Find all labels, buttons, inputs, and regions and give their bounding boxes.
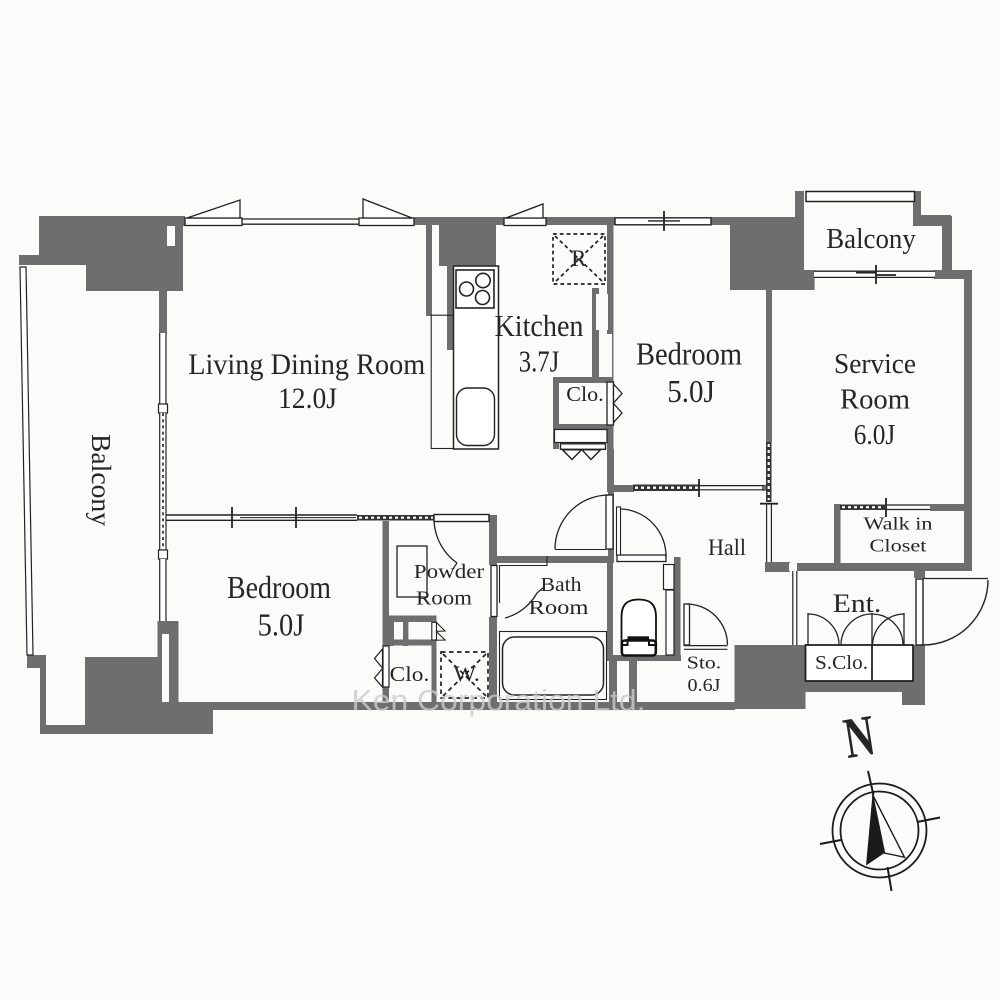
svg-text:Walk in: Walk in [864, 514, 933, 534]
svg-text:Room: Room [840, 384, 910, 416]
svg-text:Hall: Hall [708, 535, 746, 561]
svg-text:Balcony: Balcony [826, 224, 916, 255]
svg-text:Balcony: Balcony [86, 434, 116, 527]
svg-text:S.Clo.: S.Clo. [815, 652, 868, 674]
svg-text:Clo.: Clo. [390, 662, 430, 686]
svg-text:Bath: Bath [541, 574, 582, 596]
svg-text:Sto.: Sto. [687, 653, 722, 673]
svg-text:6.0J: 6.0J [854, 419, 896, 451]
svg-text:3.7J: 3.7J [519, 344, 560, 379]
svg-text:Service: Service [834, 348, 916, 380]
svg-text:Room: Room [416, 589, 472, 610]
svg-text:Kitchen: Kitchen [495, 308, 584, 343]
svg-text:Ent.: Ent. [833, 588, 882, 618]
svg-text:W.: W. [453, 661, 480, 686]
svg-text:Living Dining Room: Living Dining Room [188, 349, 425, 381]
svg-text:5.0J: 5.0J [258, 608, 305, 643]
svg-text:Clo.: Clo. [566, 382, 604, 406]
svg-text:Closet: Closet [870, 536, 927, 556]
svg-text:R: R [571, 246, 587, 271]
svg-text:12.0J: 12.0J [278, 382, 337, 415]
svg-text:0.6J: 0.6J [688, 675, 721, 695]
svg-text:Room: Room [529, 597, 590, 619]
svg-text:Ken Corporation Ltd.: Ken Corporation Ltd. [352, 685, 646, 718]
svg-text:Bedroom: Bedroom [227, 570, 331, 605]
svg-text:5.0J: 5.0J [667, 374, 715, 409]
svg-text:Bedroom: Bedroom [636, 337, 742, 372]
svg-text:Powder: Powder [414, 562, 485, 583]
